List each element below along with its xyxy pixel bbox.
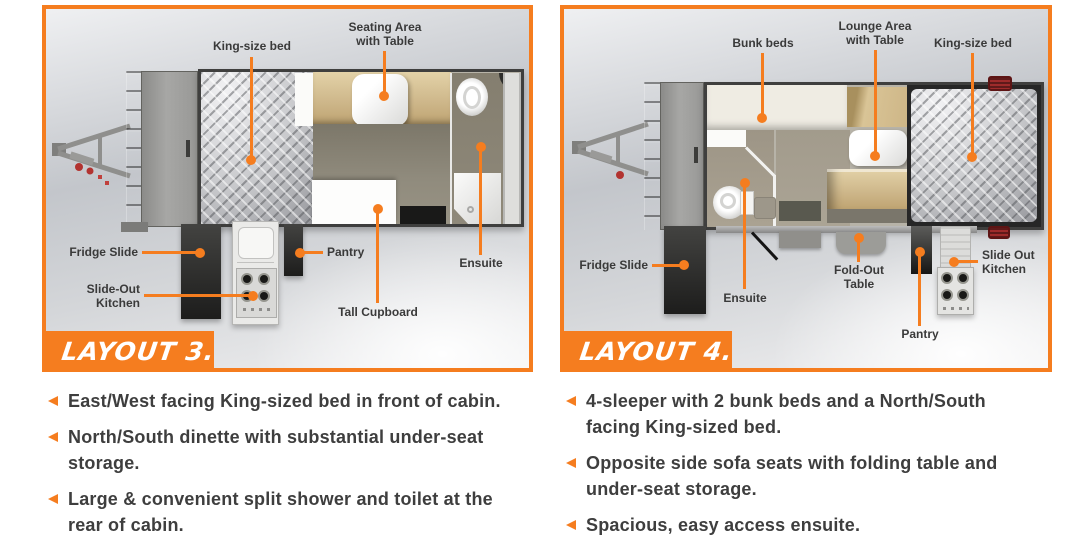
layout3-tall-cupboard <box>312 180 396 224</box>
layout4-entry-mat <box>779 201 821 221</box>
layout4-door-strut <box>751 231 778 260</box>
layout4-fold-table-dot <box>854 233 864 243</box>
layout3-kitchen-dot <box>248 291 258 301</box>
layout4-bunks-line <box>761 53 764 115</box>
layout4-floorplan: Bunk beds Lounge Area with Table King-si… <box>564 9 1048 368</box>
layout4-kitchen-line <box>958 260 978 263</box>
layout3-panel: King-size bed Seating Area with Table Fr… <box>42 5 533 372</box>
bullet-triangle-icon <box>48 494 58 504</box>
bullet-triangle-icon <box>566 520 576 530</box>
feature-text: North/South dinette with substantial und… <box>68 424 524 476</box>
layout4-ensuite-wall-top <box>707 130 746 147</box>
layout4-bunks-dot <box>757 113 767 123</box>
bullet-triangle-icon <box>48 396 58 406</box>
feature-text: Opposite side sofa seats with folding ta… <box>586 450 1012 502</box>
layout3-ensuite-dot <box>476 142 486 152</box>
feature-text: Spacious, easy access ensuite. <box>586 512 860 538</box>
layout3-feature-list: East/West facing King-sized bed in front… <box>46 388 524 546</box>
layout4-sofa-base <box>827 209 910 223</box>
layout4-hitch-drawbar-icon <box>572 111 650 185</box>
layout4-fridge-dot <box>679 260 689 270</box>
layout4-front-stoneguard <box>644 82 660 230</box>
layout3-entry-step <box>121 222 148 232</box>
layout3-kitchen-label: Slide-Out Kitchen <box>56 283 140 311</box>
layout4-entry-step <box>779 231 821 248</box>
layout3-bedside-shelf <box>295 73 314 126</box>
layout4-front-storage-box <box>660 82 704 230</box>
layout4-sofa-seat-top <box>847 87 910 127</box>
layout3-slide-out-kitchen <box>232 221 279 325</box>
layout3-cupboard-label: Tall Cupboard <box>318 306 438 320</box>
bullet-triangle-icon <box>48 432 58 442</box>
layout4-kitchen-stove <box>937 267 974 315</box>
layout4-tail-light-top <box>988 76 1012 91</box>
layout3-king-bed-line <box>250 57 253 157</box>
layout3-cupboard-dot <box>373 204 383 214</box>
list-item: Large & convenient split shower and toil… <box>46 486 524 538</box>
feature-text: East/West facing King-sized bed in front… <box>68 388 501 414</box>
layout4-feature-list: 4-sleeper with 2 bunk beds and a North/S… <box>564 388 1012 546</box>
layout3-king-bed-dot <box>246 155 256 165</box>
bullet-triangle-icon <box>566 458 576 468</box>
list-item: North/South dinette with substantial und… <box>46 424 524 476</box>
layout4-lounge-label: Lounge Area with Table <box>825 20 925 48</box>
layout4-pantry-label: Pantry <box>880 328 960 342</box>
layout3-pantry-label: Pantry <box>327 246 387 260</box>
layout4-ensuite-vanity <box>754 197 776 219</box>
layout4-ensuite-line <box>743 187 746 289</box>
layout4-pantry-line <box>918 255 921 326</box>
layout3-kitchen-line <box>144 294 251 297</box>
layout4-fridge-label: Fridge Slide <box>566 259 648 273</box>
layout4-kitchen-dot <box>949 257 959 267</box>
layout4-lounge-line <box>874 50 877 153</box>
list-item: Spacious, easy access ensuite. <box>564 512 1012 538</box>
layout3-fridge-line <box>142 251 199 254</box>
layout4-tail-light-bottom <box>988 226 1010 239</box>
layout3-fridge-slide <box>181 224 221 319</box>
feature-text: 4-sleeper with 2 bunk beds and a North/S… <box>586 388 1012 440</box>
layout3-hitch-drawbar-icon <box>52 115 132 187</box>
layout3-pantry-line <box>304 251 323 254</box>
layout4-lounge-dot <box>870 151 880 161</box>
layout3-fridge-label: Fridge Slide <box>52 246 138 260</box>
bullet-triangle-icon <box>566 396 576 406</box>
layout4-king-bed-line <box>971 53 974 154</box>
caravan-layouts-infographic: King-size bed Seating Area with Table Fr… <box>0 0 1080 546</box>
layout3-cabin-body <box>198 69 524 227</box>
layout3-cabinet-dark <box>400 206 446 224</box>
layout3-ensuite-line <box>479 151 482 255</box>
layout3-front-stoneguard <box>126 71 141 227</box>
list-item: East/West facing King-sized bed in front… <box>46 388 524 414</box>
layout4-king-bed-dot <box>967 152 977 162</box>
layout4-ensuite-dot <box>740 178 750 188</box>
layout3-pantry-dot <box>295 248 305 258</box>
layout4-banner: LAYOUT 4. <box>560 331 732 372</box>
layout3-seating-label: Seating Area with Table <box>335 21 435 49</box>
layout3-kitchen-sink <box>238 227 274 259</box>
layout3-toilet <box>456 78 488 116</box>
layout4-lounge-table <box>849 130 907 166</box>
layout3-seating-dot <box>379 91 389 101</box>
layout3-rear-door <box>503 73 521 224</box>
layout4-king-bed-label: King-size bed <box>914 37 1032 51</box>
layout3-ensuite-label: Ensuite <box>441 257 521 271</box>
layout4-kitchen-label: Slide Out Kitchen <box>982 249 1052 277</box>
layout4-fridge-slide <box>664 226 706 314</box>
layout3-front-storage-box <box>141 71 198 227</box>
list-item: Opposite side sofa seats with folding ta… <box>564 450 1012 502</box>
layout4-sofa-seat-bottom <box>827 169 910 209</box>
layout4-panel: Bunk beds Lounge Area with Table King-si… <box>560 5 1052 372</box>
layout4-fold-table-label: Fold-Out Table <box>819 264 899 292</box>
layout4-bunk-beds <box>707 85 847 130</box>
layout3-ensuite-wall <box>450 73 452 224</box>
layout4-fold-table-line <box>857 241 860 262</box>
layout3-fridge-dot <box>195 248 205 258</box>
layout4-ensuite-label: Ensuite <box>705 292 785 306</box>
layout3-banner: LAYOUT 3. <box>42 331 214 372</box>
layout3-seating-line <box>383 51 386 95</box>
feature-text: Large & convenient split shower and toil… <box>68 486 524 538</box>
layout3-king-bed-label: King-size bed <box>192 40 312 54</box>
layout3-floorplan: King-size bed Seating Area with Table Fr… <box>46 9 529 368</box>
list-item: 4-sleeper with 2 bunk beds and a North/S… <box>564 388 1012 440</box>
layout4-pantry-dot <box>915 247 925 257</box>
layout4-bunks-label: Bunk beds <box>703 37 823 51</box>
